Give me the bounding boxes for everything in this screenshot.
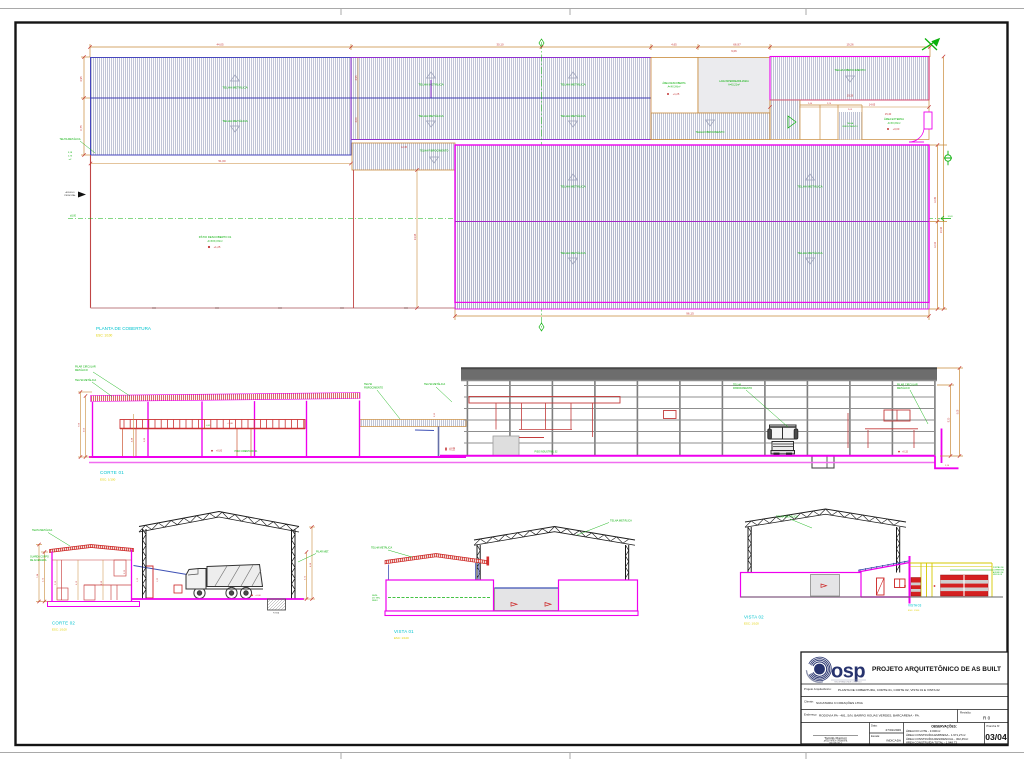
- svg-text:15,40: 15,40: [885, 112, 892, 116]
- svg-text:GUARDA CORPO: GUARDA CORPO: [30, 556, 49, 559]
- svg-text:FIBROCIMENTO: FIBROCIMENTO: [733, 387, 752, 390]
- svg-text:m²: m²: [69, 158, 72, 161]
- svg-text:9,08: 9,08: [958, 409, 960, 414]
- svg-text:+1,25: +1,25: [673, 92, 680, 96]
- svg-text:TELHA METÁLICA: TELHA METÁLICA: [59, 138, 80, 141]
- svg-text:A=XX,XXm²: A=XX,XXm²: [668, 86, 681, 89]
- svg-text:03/04: 03/04: [985, 732, 1007, 742]
- svg-text:OBSERVAÇÕES:: OBSERVAÇÕES:: [931, 724, 957, 729]
- svg-text:TELHA METÁLICA: TELHA METÁLICA: [75, 379, 96, 382]
- svg-text:PRINCIPAL: PRINCIPAL: [64, 194, 76, 197]
- svg-text:8,30: 8,30: [949, 417, 951, 422]
- svg-text:12,43: 12,43: [934, 241, 937, 248]
- svg-text:+0,15: +0,15: [902, 451, 909, 453]
- svg-text:FOSSA: FOSSA: [273, 612, 280, 615]
- svg-text:METÁLICO: METÁLICO: [897, 387, 910, 390]
- svg-text:RECUPERADORA E COMÉRCIO: RECUPERADORA E COMÉRCIO: [834, 680, 862, 683]
- svg-text:A=XXX,XXm²: A=XXX,XXm²: [207, 240, 222, 243]
- svg-text:ÁREA EXTERNA: ÁREA EXTERNA: [884, 117, 904, 121]
- svg-text:+0,00: +0,00: [255, 595, 261, 597]
- svg-text:CAU A36.361-2: CAU A36.361-2: [829, 741, 842, 744]
- svg-text:PÁTIO DESCOBERTO 01: PÁTIO DESCOBERTO 01: [199, 235, 232, 239]
- svg-text:51,60: 51,60: [219, 159, 226, 163]
- svg-text:Prancha Nº: Prancha Nº: [987, 724, 1000, 728]
- svg-text:96,15: 96,15: [686, 312, 694, 316]
- svg-text:RENO: RENO: [372, 600, 378, 602]
- svg-text:TELHA METÁLICA: TELHA METÁLICA: [560, 251, 585, 255]
- svg-text:Endereço:: Endereço:: [804, 713, 817, 717]
- svg-text:TELHA METÁLICA: TELHA METÁLICA: [222, 119, 247, 123]
- svg-text:ESC: 1/100: ESC: 1/100: [52, 628, 67, 632]
- svg-text:ACESSO: ACESSO: [65, 191, 74, 194]
- svg-text:A=XX,XXm²: A=XX,XXm²: [888, 122, 901, 125]
- svg-text:±0,00: ±0,00: [70, 215, 77, 218]
- svg-text:TELHA METÁLICA: TELHA METÁLICA: [610, 519, 632, 523]
- svg-text:VISTA 01: VISTA 01: [394, 629, 414, 634]
- svg-text:TELHA METÁLICA: TELHA METÁLICA: [560, 83, 585, 87]
- svg-text:30,10: 30,10: [497, 43, 504, 47]
- svg-text:TELHA METÁLICA: TELHA METÁLICA: [776, 515, 798, 519]
- svg-text:TELHA METÁLICA: TELHA METÁLICA: [797, 185, 822, 189]
- svg-text:4,95: 4,95: [79, 76, 83, 82]
- svg-text:Projeto Arquitetônico:: Projeto Arquitetônico:: [804, 687, 832, 691]
- svg-text:CORTE 01: CORTE 01: [100, 470, 124, 475]
- svg-text:+2,88: +2,88: [227, 423, 233, 425]
- svg-text:osp: osp: [831, 661, 865, 683]
- svg-text:NÍVEL: NÍVEL: [372, 594, 379, 597]
- svg-text:4,00: 4,00: [354, 117, 358, 123]
- svg-text:ESC: 1/100: ESC: 1/100: [908, 610, 920, 612]
- svg-text:PILAR MET.: PILAR MET.: [316, 551, 329, 554]
- svg-text:INDICADA: INDICADA: [886, 739, 902, 743]
- svg-text:TELHA: TELHA: [847, 122, 854, 125]
- svg-text:VISTA 03: VISTA 03: [908, 604, 921, 608]
- svg-text:6,75: 6,75: [79, 125, 83, 131]
- svg-text:Data:: Data:: [871, 724, 878, 728]
- svg-text:+1,25: +1,25: [214, 245, 221, 249]
- svg-text:RODOVIA PA - 481, S/N, BAIRRO: RODOVIA PA - 481, S/N, BAIRRO ÁGUAS VERD…: [819, 714, 920, 718]
- svg-text:4,95: 4,95: [354, 75, 358, 81]
- svg-text:9,06: 9,06: [731, 49, 737, 53]
- svg-text:12,05: 12,05: [934, 196, 937, 203]
- svg-text:TELHA FIBROCIMENTO: TELHA FIBROCIMENTO: [420, 149, 449, 153]
- svg-text:66,97: 66,97: [733, 43, 741, 47]
- svg-text:TELHA METÁLICA: TELHA METÁLICA: [424, 383, 445, 386]
- svg-text:4,65: 4,65: [671, 43, 677, 47]
- svg-text:Revisão:: Revisão:: [960, 711, 971, 715]
- svg-text:R 0: R 0: [983, 716, 991, 721]
- svg-text:Cliente:: Cliente:: [804, 700, 814, 704]
- svg-text:12,43: 12,43: [947, 216, 953, 218]
- svg-text:14,35: 14,35: [413, 233, 417, 240]
- svg-text:24,48: 24,48: [940, 226, 943, 233]
- svg-text:TELHA METÁLICA: TELHA METÁLICA: [560, 185, 585, 189]
- svg-text:ESC: 1/100: ESC: 1/100: [96, 334, 113, 338]
- svg-text:+0,00: +0,00: [216, 450, 223, 453]
- svg-text:ESC: 1/100: ESC: 1/100: [744, 622, 759, 626]
- svg-text:VEÍCULOS: VEÍCULOS: [993, 573, 1003, 576]
- svg-text:TELHA METÁLICA: TELHA METÁLICA: [32, 529, 53, 532]
- svg-text:27/01/2026: 27/01/2026: [886, 728, 902, 732]
- svg-text:A=61,21m²: A=61,21m²: [728, 84, 740, 87]
- svg-text:19,26: 19,26: [847, 94, 854, 98]
- svg-text:PROJETO ARQUITETÔNICO DE AS BU: PROJETO ARQUITETÔNICO DE AS BUILT: [872, 664, 1001, 673]
- svg-text:ÁREA CONSTRUÍDA TOTAL - 1.948,: ÁREA CONSTRUÍDA TOTAL - 1.948,73: [906, 741, 957, 745]
- svg-text:DE ALVENARIA: DE ALVENARIA: [30, 559, 47, 562]
- svg-text:19,26: 19,26: [847, 43, 854, 47]
- svg-text:+0,00: +0,00: [893, 127, 900, 131]
- svg-text:FIBROCIMENTO: FIBROCIMENTO: [842, 126, 858, 128]
- svg-text:TELHA METÁLICA: TELHA METÁLICA: [222, 86, 247, 90]
- svg-text:TELHA METÁLICA: TELHA METÁLICA: [560, 114, 585, 118]
- svg-text:TELHA METÁLICA: TELHA METÁLICA: [371, 547, 392, 550]
- svg-text:METÁLICO: METÁLICO: [75, 369, 88, 372]
- svg-text:FIBROCIMENTO: FIBROCIMENTO: [364, 386, 383, 389]
- svg-text:TELHA METÁLICA: TELHA METÁLICA: [797, 251, 822, 255]
- svg-text:PISO INDUSTRIAL 02: PISO INDUSTRIAL 02: [535, 450, 559, 453]
- svg-text:ESC: 1/100: ESC: 1/100: [100, 478, 116, 482]
- svg-text:12,36: 12,36: [401, 146, 408, 149]
- svg-text:PISO CIMENTADO 01: PISO CIMENTADO 01: [235, 450, 259, 453]
- svg-text:TELHA FIBROCIMENTO: TELHA FIBROCIMENTO: [834, 68, 866, 72]
- svg-text:+0,15: +0,15: [449, 450, 456, 452]
- svg-text:PLANTA DE COBERTURA: PLANTA DE COBERTURA: [96, 326, 152, 331]
- svg-text:PLANTA DE COBERTURA, CORTE 01,: PLANTA DE COBERTURA, CORTE 01, CORTE 02,…: [838, 688, 940, 692]
- svg-text:44,05: 44,05: [217, 43, 224, 47]
- svg-text:CORTE 02: CORTE 02: [52, 621, 75, 626]
- svg-text:SUCATARIA 3 CORAÇÕES LTDA: SUCATARIA 3 CORAÇÕES LTDA: [816, 700, 864, 705]
- svg-text:Escala:: Escala:: [871, 734, 880, 738]
- svg-text:VISTA 02: VISTA 02: [744, 615, 764, 620]
- svg-text:14,65: 14,65: [869, 103, 876, 107]
- svg-text:TELHA METÁLICA: TELHA METÁLICA: [418, 114, 443, 118]
- svg-text:TELHA FIBROCIMENTO: TELHA FIBROCIMENTO: [696, 130, 725, 134]
- svg-text:ESC: 1/100: ESC: 1/100: [394, 636, 409, 640]
